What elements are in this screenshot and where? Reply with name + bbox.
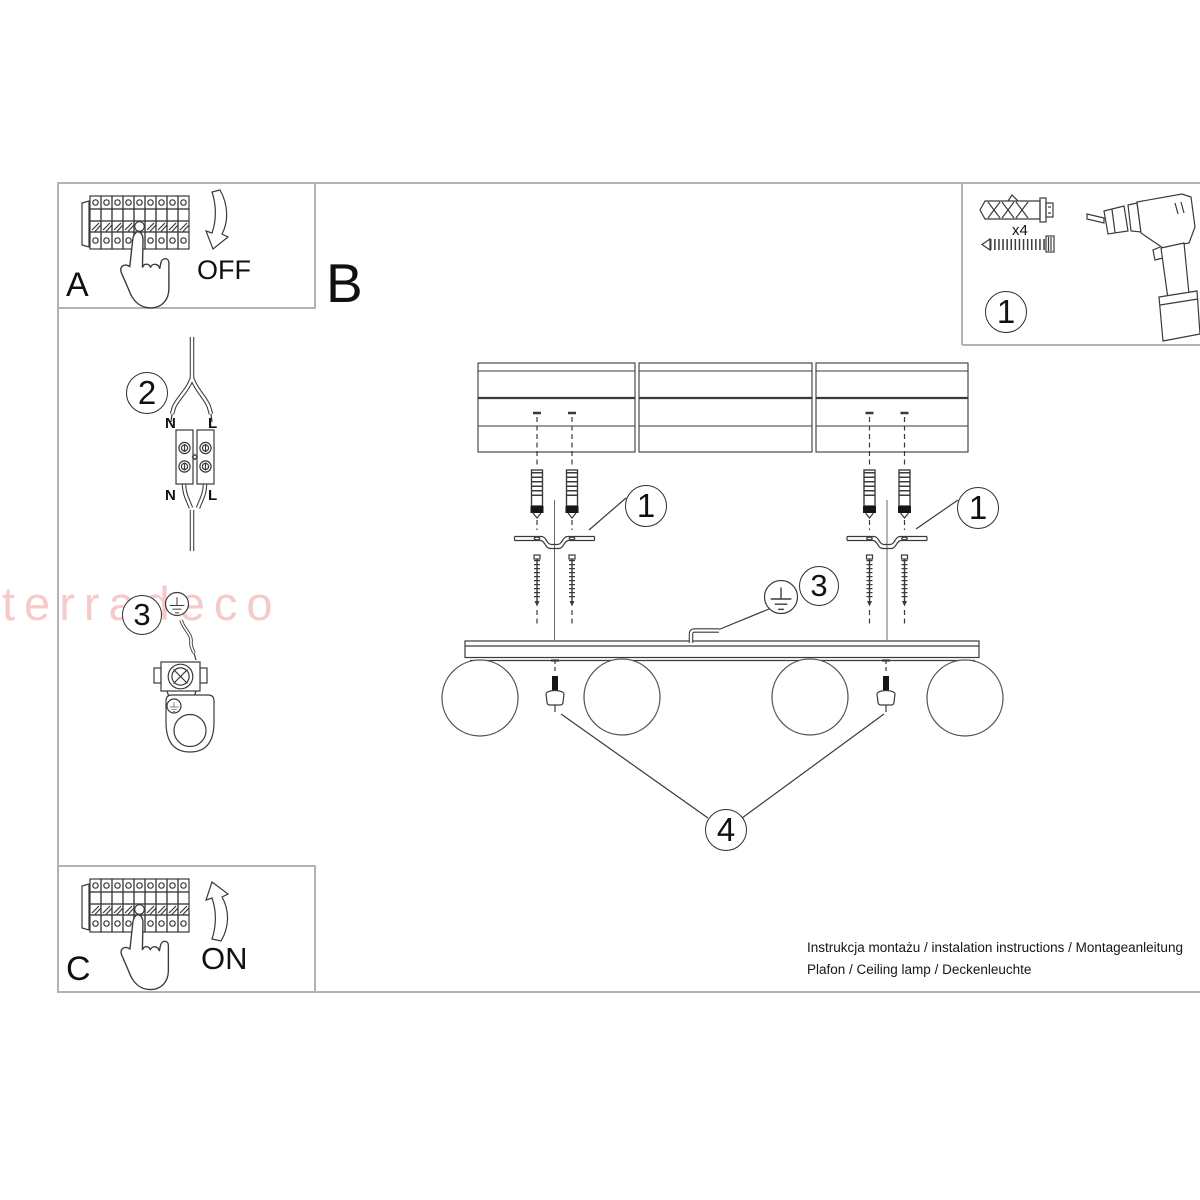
canopy-icon xyxy=(166,695,214,752)
callout-leader xyxy=(589,498,626,530)
callout-leader xyxy=(719,609,769,630)
page-frame xyxy=(58,183,1200,992)
on-arrow-icon xyxy=(206,882,228,941)
lamp-globe xyxy=(772,659,848,735)
lamp-globe xyxy=(442,660,518,736)
wire-label-live-top: L xyxy=(208,415,217,432)
breaker-on-label: ON xyxy=(201,941,248,977)
mounting-hardware-left xyxy=(515,413,595,640)
instruction-drawing xyxy=(0,0,1200,1200)
callout-mounting-left: 1 xyxy=(625,485,667,527)
instruction-sheet: { "document": { "watermark": "terradeco"… xyxy=(0,0,1200,1200)
wire-label-live-bottom: L xyxy=(208,487,217,504)
callout-terminal-wiring: 2 xyxy=(126,372,168,414)
drill-icon xyxy=(1087,194,1200,341)
callout-parts: 1 xyxy=(985,291,1027,333)
ground-detail-icon xyxy=(154,593,214,753)
breaker-off-label: OFF xyxy=(197,255,251,286)
lamp-globe xyxy=(927,660,1003,736)
callout-mounting-right: 1 xyxy=(957,487,999,529)
wall-anchor-icon xyxy=(980,195,1053,222)
lamp-bar xyxy=(465,641,979,661)
lamp-globe xyxy=(584,659,660,735)
ceiling-panel xyxy=(478,363,968,452)
globe-fixing-screw-icon xyxy=(546,660,564,712)
callout-globe-fixing: 4 xyxy=(705,809,747,851)
step-b-label: B xyxy=(326,251,363,315)
callout-ground-detail: 3 xyxy=(122,595,162,635)
ground-symbol-icon xyxy=(765,581,798,614)
footer-product-line: Plafon / Ceiling lamp / Deckenleuchte xyxy=(807,962,1031,977)
breaker-panel-a-icon xyxy=(82,190,228,308)
wire-label-neutral-bottom: N xyxy=(165,487,176,504)
step-a-label: A xyxy=(66,266,89,305)
terminal-block-icon xyxy=(171,335,214,553)
anchor-quantity-label: x4 xyxy=(1012,222,1028,239)
wire-label-neutral-top: N xyxy=(165,415,176,432)
lamp-globes xyxy=(442,659,1003,736)
step-c-label: C xyxy=(66,950,91,989)
callout-ground: 3 xyxy=(799,566,839,606)
power-cable xyxy=(691,609,769,643)
callout-leader xyxy=(916,500,958,529)
mounting-hardware-right xyxy=(847,413,927,640)
footer-title-line: Instrukcja montażu / instalation instruc… xyxy=(807,940,1183,955)
globe-fixing-screw-icon xyxy=(877,660,895,712)
off-arrow-icon xyxy=(206,190,228,249)
